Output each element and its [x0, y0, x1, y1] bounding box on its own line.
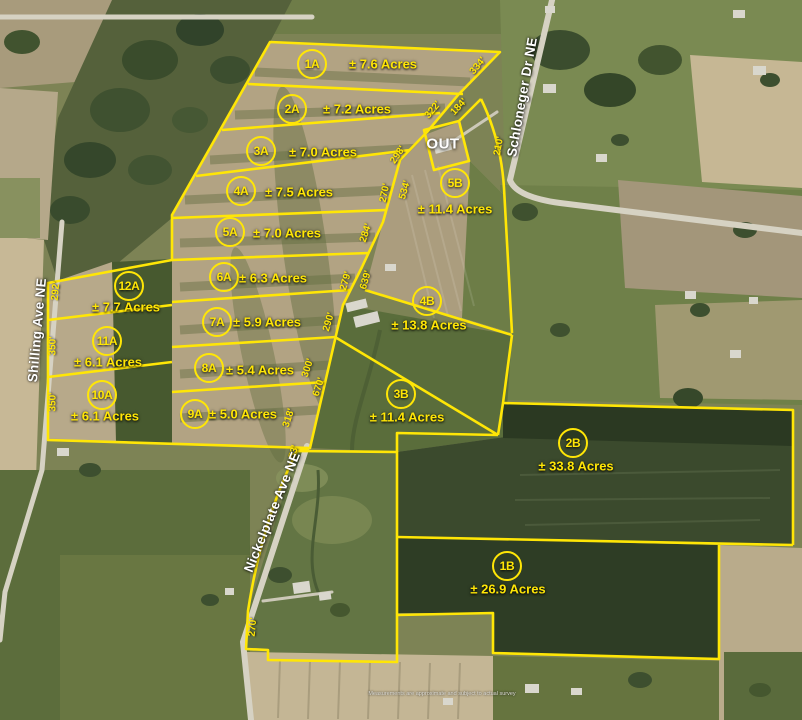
- dimension-label: 300': [300, 357, 316, 379]
- dimension-label: 184': [448, 96, 469, 117]
- out-parcel-label: OUT: [426, 136, 459, 153]
- dimension-label: 322': [423, 99, 444, 121]
- parcel-acreage-7a: ± 5.9 Acres: [233, 315, 301, 330]
- parcel-number-5a: 5A: [215, 217, 245, 247]
- road-label-nickelplate-ave-ne: Nickelplate Ave NE: [241, 450, 303, 575]
- dimension-label: 639': [358, 269, 374, 290]
- parcel-number-1b: 1B: [492, 551, 522, 581]
- parcel-acreage-1b: ± 26.9 Acres: [470, 582, 545, 597]
- parcel-acreage-5a: ± 7.0 Acres: [253, 226, 321, 241]
- parcel-acreage-1a: ± 7.6 Acres: [349, 57, 417, 72]
- parcel-number-9a: 9A: [180, 399, 210, 429]
- dimension-label: 350': [47, 336, 58, 355]
- map-labels-overlay: OUT Measurements are approximate and sub…: [0, 0, 802, 720]
- parcel-acreage-2b: ± 33.8 Acres: [538, 459, 613, 474]
- road-label-shilling-ave-ne: Shilling Ave NE: [25, 277, 49, 383]
- parcel-acreage-12a: ± 7.7 Acres: [92, 300, 160, 315]
- dimension-label: 284': [358, 222, 374, 244]
- parcel-number-6a: 6A: [209, 262, 239, 292]
- parcel-acreage-3a: ± 7.0 Acres: [289, 145, 357, 160]
- parcel-acreage-10a: ± 6.1 Acres: [71, 409, 139, 424]
- road-label-schloneger-dr-ne: Schloneger Dr NE: [504, 36, 540, 158]
- parcel-number-3b: 3B: [386, 379, 416, 409]
- dimension-label: 270': [378, 183, 393, 204]
- dimension-label: 298': [388, 144, 408, 166]
- parcel-number-7a: 7A: [202, 307, 232, 337]
- parcel-number-5b: 5B: [440, 168, 470, 198]
- parcel-acreage-6a: ± 6.3 Acres: [239, 271, 307, 286]
- parcel-number-4b: 4B: [412, 286, 442, 316]
- dimension-label: 279': [338, 270, 354, 291]
- parcel-acreage-3b: ± 11.4 Acres: [370, 410, 445, 425]
- dimension-label: 334': [468, 55, 489, 77]
- dimension-label: 670': [311, 376, 327, 398]
- parcel-acreage-5b: ± 11.4 Acres: [418, 202, 493, 217]
- parcel-number-4a: 4A: [226, 176, 256, 206]
- dimension-label: 270': [247, 617, 260, 637]
- dimension-label: 534': [397, 179, 413, 200]
- dimension-label: 292': [50, 281, 63, 301]
- dimension-label: 350': [47, 392, 58, 411]
- dimension-label: 290': [321, 311, 337, 332]
- parcel-number-1a: 1A: [297, 49, 327, 79]
- parcel-acreage-11a: ± 6.1 Acres: [74, 355, 142, 370]
- dimension-label: 318': [281, 407, 297, 429]
- parcel-number-10a: 10A: [87, 380, 117, 410]
- parcel-number-2a: 2A: [277, 94, 307, 124]
- parcel-number-11a: 11A: [92, 326, 122, 356]
- disclaimer-text: Measurements are approximate and subject…: [368, 691, 515, 697]
- parcel-number-8a: 8A: [194, 353, 224, 383]
- parcel-number-3a: 3A: [246, 136, 276, 166]
- parcel-acreage-4a: ± 7.5 Acres: [265, 185, 333, 200]
- parcel-acreage-9a: ± 5.0 Acres: [209, 407, 277, 422]
- aerial-parcel-map: OUT Measurements are approximate and sub…: [0, 0, 802, 720]
- parcel-acreage-2a: ± 7.2 Acres: [323, 102, 391, 117]
- parcel-number-2b: 2B: [558, 428, 588, 458]
- parcel-number-12a: 12A: [114, 271, 144, 301]
- parcel-acreage-8a: ± 5.4 Acres: [226, 363, 294, 378]
- parcel-acreage-4b: ± 13.8 Acres: [391, 318, 466, 333]
